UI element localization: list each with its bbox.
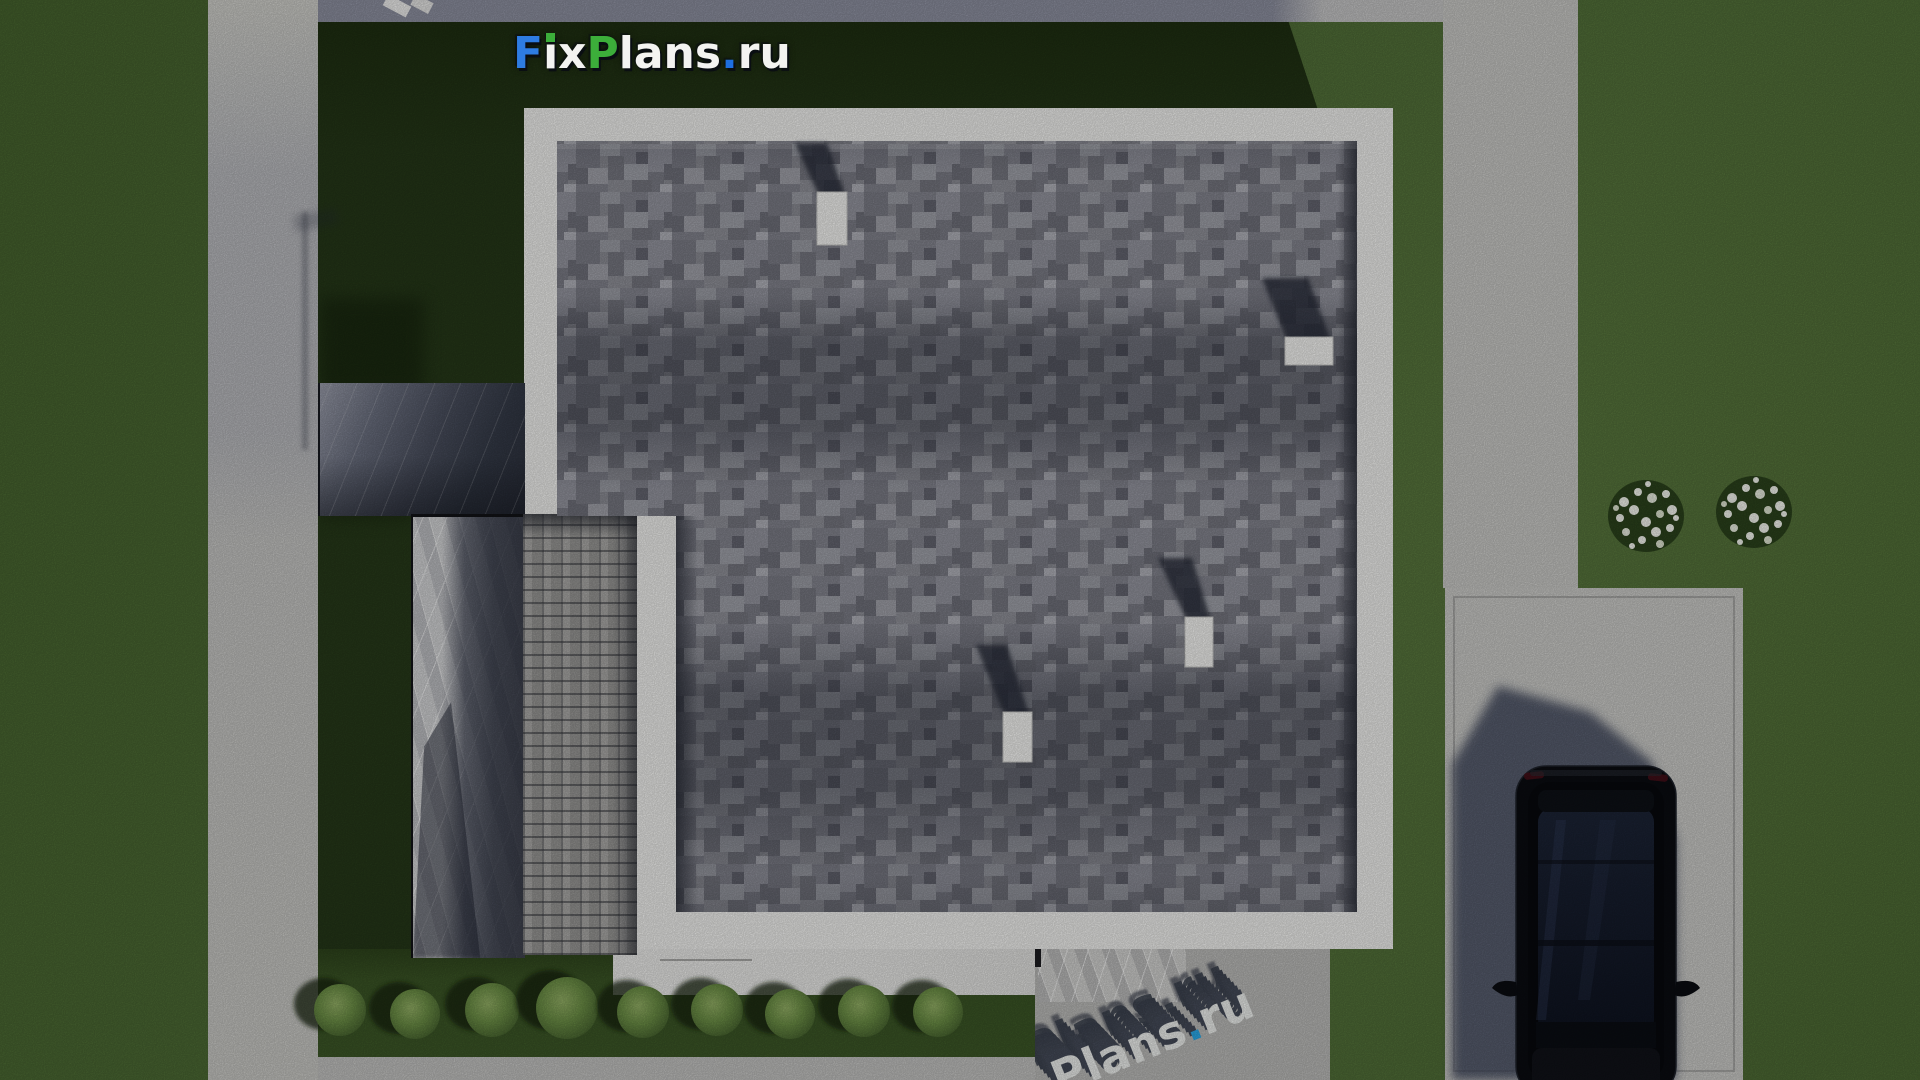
- watermark-fixplans-logo: FixPlans.ru: [513, 28, 791, 79]
- terrace-paver-strip: [523, 514, 637, 955]
- logo-f: F: [513, 28, 543, 79]
- bottom-concrete-strip: [318, 1057, 1035, 1080]
- walkway-joint-line: [660, 959, 752, 961]
- logo-i-dot: [546, 33, 555, 42]
- logo-ru: ru: [738, 28, 791, 79]
- site-plan-render: Plans.ru: [0, 0, 1920, 1080]
- logo-p: P: [587, 28, 619, 79]
- lamppost-shadow: [302, 212, 308, 450]
- tree-shadow-patch: [320, 298, 424, 394]
- top-footpath: [318, 0, 1578, 22]
- logo-lans: lans: [619, 28, 721, 79]
- logo-dot: .: [721, 28, 738, 79]
- driveway-border-line: [1453, 596, 1735, 1072]
- driveway-pad: [1445, 588, 1743, 1080]
- paver-right-shadow: [613, 514, 637, 955]
- patio-dark-corner: [1035, 947, 1041, 967]
- terrace-marble-floor: [411, 514, 525, 958]
- right-footpath: [1443, 0, 1578, 588]
- white-walkway: [613, 949, 1035, 995]
- left-footpath: [208, 0, 318, 1080]
- patio-marble-corner: [1038, 948, 1186, 1002]
- wm-bottom-plans: Plans: [1043, 1002, 1194, 1080]
- pergola-canopy: [318, 383, 525, 516]
- patio-pad: Plans.ru: [1035, 943, 1330, 1080]
